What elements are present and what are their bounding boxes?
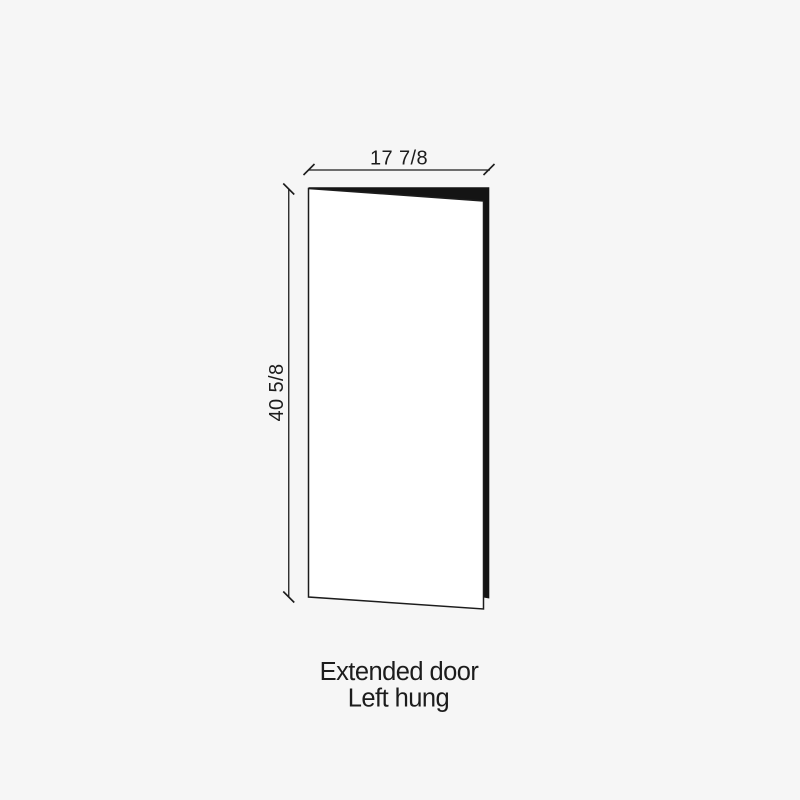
svg-text:Left hung: Left hung	[348, 685, 449, 713]
svg-text:17 7/8: 17 7/8	[370, 148, 428, 170]
svg-text:40 5/8: 40 5/8	[266, 363, 288, 421]
svg-text:Extended door: Extended door	[320, 658, 480, 686]
